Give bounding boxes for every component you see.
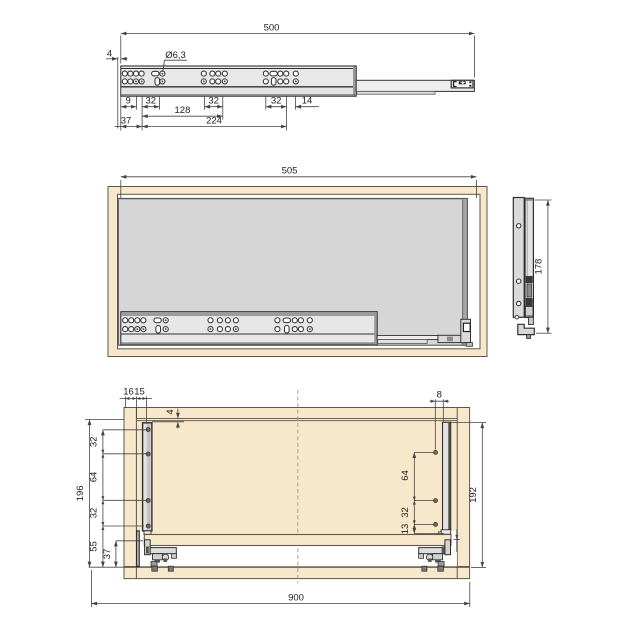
svg-text:8: 8	[437, 390, 442, 401]
svg-text:32: 32	[400, 507, 411, 518]
svg-text:32: 32	[88, 508, 99, 519]
svg-text:55: 55	[88, 541, 99, 552]
svg-text:13: 13	[400, 524, 411, 535]
svg-text:32: 32	[88, 437, 99, 448]
svg-text:64: 64	[400, 470, 411, 481]
svg-text:16: 16	[123, 387, 134, 398]
svg-text:505: 505	[282, 166, 298, 177]
svg-text:32: 32	[271, 96, 282, 107]
svg-text:15: 15	[134, 387, 145, 398]
svg-text:224: 224	[206, 115, 222, 126]
svg-text:4: 4	[107, 49, 112, 60]
svg-text:9: 9	[126, 96, 131, 107]
svg-text:178: 178	[533, 259, 544, 275]
svg-text:14: 14	[302, 96, 313, 107]
svg-text:64: 64	[88, 472, 99, 483]
svg-text:37: 37	[102, 549, 113, 560]
svg-text:192: 192	[468, 487, 479, 503]
svg-text:128: 128	[175, 105, 191, 116]
svg-text:Ø6,3: Ø6,3	[165, 50, 186, 61]
svg-text:32: 32	[208, 96, 219, 107]
svg-text:37: 37	[121, 115, 132, 126]
svg-text:4: 4	[165, 409, 176, 414]
svg-text:500: 500	[264, 22, 280, 33]
svg-text:196: 196	[75, 485, 86, 501]
svg-text:900: 900	[288, 592, 304, 603]
svg-text:32: 32	[145, 96, 156, 107]
